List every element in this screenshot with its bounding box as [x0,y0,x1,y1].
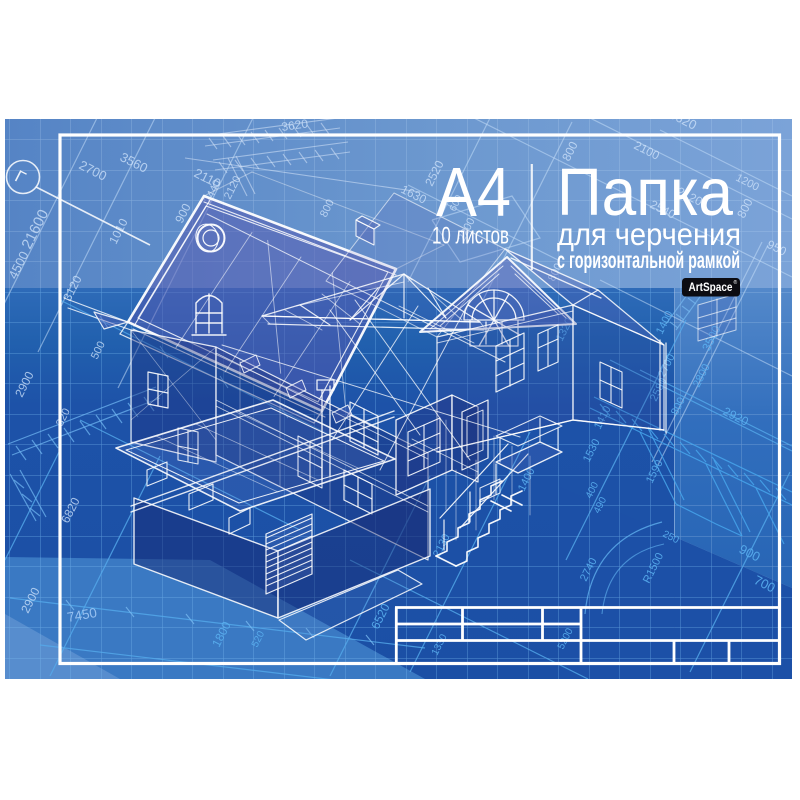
svg-text:ArtSpace: ArtSpace [689,280,733,294]
svg-text:А4: А4 [436,153,511,231]
svg-text:10 листов: 10 листов [432,223,509,250]
svg-text:®: ® [734,279,738,286]
svg-text:с горизонтальной рамкой: с горизонтальной рамкой [557,247,740,273]
